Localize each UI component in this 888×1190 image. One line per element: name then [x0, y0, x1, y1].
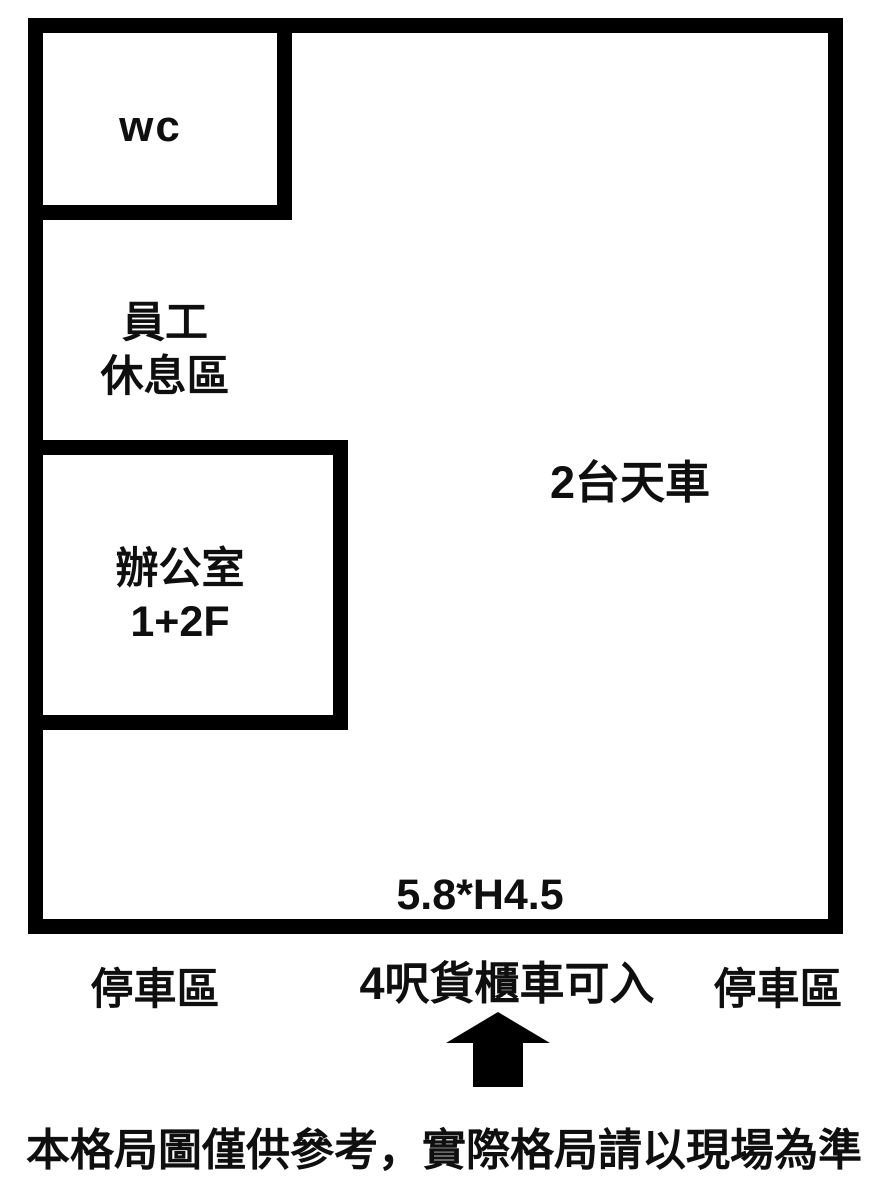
- room-staff-rest-label-line1: 員工: [40, 296, 290, 350]
- room-staff-rest-label-line2: 休息區: [40, 350, 290, 404]
- room-wc-label: wc: [43, 103, 258, 151]
- room-office-label: 辦公室 1+2F: [35, 543, 325, 649]
- parking-area-left-label: 停車區: [55, 966, 255, 1014]
- floor-plan: wc 員工 休息區 辦公室 1+2F 2台天車 5.8*H4.5 停車區 4呎貨…: [0, 0, 888, 1190]
- door-dimension-annotation: 5.8*H4.5: [330, 873, 630, 917]
- crane-annotation: 2台天車: [450, 459, 810, 507]
- room-office-label-line2: 1+2F: [35, 596, 325, 649]
- up-arrow-stem: [473, 1041, 523, 1087]
- disclaimer-text: 本格局圖僅供參考，實際格局請以現場為準: [0, 1124, 888, 1177]
- parking-area-right-label: 停車區: [678, 966, 878, 1014]
- container-entrance-label: 4呎貨櫃車可入: [330, 959, 684, 1009]
- up-arrow-head: [446, 1012, 550, 1043]
- room-staff-rest-label: 員工 休息區: [40, 296, 290, 404]
- room-office-label-line1: 辦公室: [35, 543, 325, 596]
